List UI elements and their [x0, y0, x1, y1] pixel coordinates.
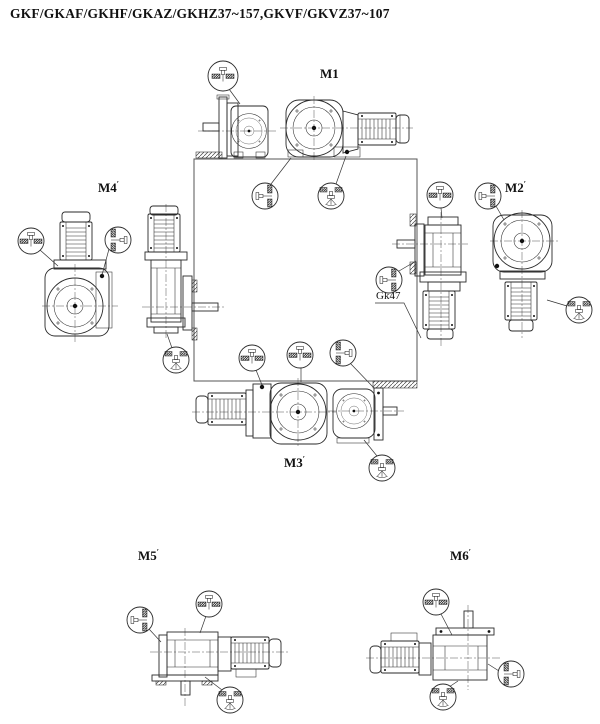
m5-breather-plug-callout — [196, 591, 222, 617]
m6-oil-drain-plug-callout — [430, 684, 456, 710]
m4-assembly-side-view — [142, 204, 224, 340]
m2-assembly-front-view — [490, 210, 558, 338]
m3-assembly-side-view — [328, 381, 417, 443]
m1-oil-drain-plug-callout — [318, 183, 344, 209]
m5-oil-level-plug-callout — [127, 607, 153, 633]
m3-assembly-front-view — [192, 378, 336, 448]
callout-leader-lines — [40, 89, 567, 690]
m2-breather-plug-callout — [427, 182, 453, 208]
m1-breather-plug-callout — [208, 61, 238, 91]
m6-breather-plug-callout — [423, 589, 449, 615]
m3-breather-plug-callout-mid — [287, 342, 313, 368]
m1-oil-level-plug-callout — [252, 183, 278, 209]
gk47-oil-level-plug-callout — [376, 267, 402, 293]
m3-breather-plug-callout-left — [239, 345, 265, 371]
m6-assembly-side-view — [366, 605, 500, 690]
m1-assembly-side-view — [196, 95, 276, 158]
m5-oil-drain-plug-callout — [217, 687, 243, 713]
m4-breather-plug-callout — [18, 228, 44, 254]
m1-assembly-front-view — [280, 96, 413, 160]
m2-assembly-side-view — [392, 212, 468, 346]
m2-oil-level-plug-callout — [475, 183, 501, 209]
m2-oil-drain-plug-callout — [566, 297, 592, 323]
m4-oil-drain-plug-callout — [163, 347, 189, 373]
diagram-canvas — [0, 0, 600, 724]
m3-oil-drain-plug-callout — [369, 455, 395, 481]
m6-oil-level-plug-callout — [498, 661, 524, 687]
mounting-position-diagram-page: GKF/GKAF/GKHF/GKAZ/GKHZ37~157,GKVF/GKVZ3… — [0, 0, 600, 724]
m3-oil-level-plug-callout — [330, 340, 356, 366]
m4-assembly-front-view — [42, 212, 118, 342]
m4-oil-level-plug-callout — [105, 227, 131, 253]
